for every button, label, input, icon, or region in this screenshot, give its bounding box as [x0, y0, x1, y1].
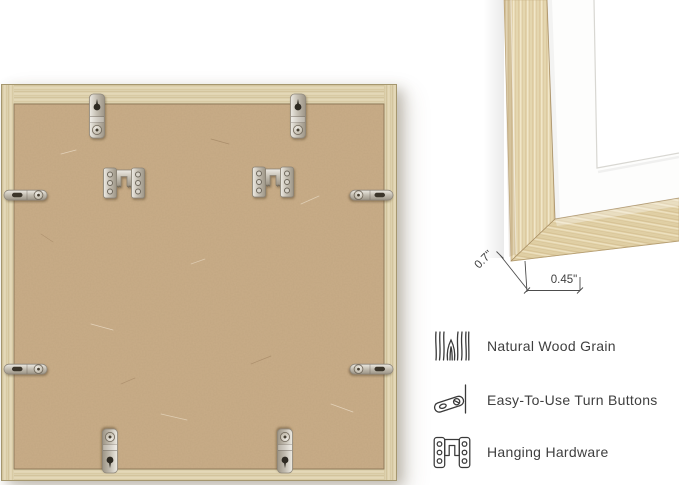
feature-row-hanging-hardware: Hanging Hardware: [433, 432, 609, 472]
feature-row-wood-grain: Natural Wood Grain: [433, 326, 616, 366]
mdf-back-panel: [14, 104, 384, 469]
frame-face-width-label: 0.45": [551, 274, 577, 286]
turn-button: [4, 190, 47, 200]
feature-label: Natural Wood Grain: [487, 338, 616, 354]
frame-corner-detail: 0.7" 0.45": [440, 0, 679, 312]
turn-button: [4, 364, 47, 374]
feature-row-turn-buttons: Easy-To-Use Turn Buttons: [433, 380, 658, 420]
feature-label: Hanging Hardware: [487, 444, 609, 460]
wood-grain-icon: [433, 331, 475, 361]
keyhole-hanger: [90, 94, 105, 138]
feature-label: Easy-To-Use Turn Buttons: [487, 392, 658, 408]
keyhole-hanger: [278, 429, 293, 473]
turn-button: [350, 190, 393, 200]
turn-button-icon: [433, 382, 475, 418]
turn-button: [350, 364, 393, 374]
corner-detail-graphic: 0.7" 0.45": [440, 0, 679, 312]
product-image: 0.7" 0.45" Natural Wood Grain: [0, 0, 679, 485]
frame-back-view: [1, 84, 397, 481]
mat-opening: [594, 0, 679, 168]
frame-moulding-vertical: [504, 0, 555, 261]
frame-back-graphic: [1, 84, 397, 481]
hanging-hardware-icon: [433, 435, 475, 470]
keyhole-hanger: [103, 429, 118, 473]
keyhole-hanger: [291, 94, 306, 138]
